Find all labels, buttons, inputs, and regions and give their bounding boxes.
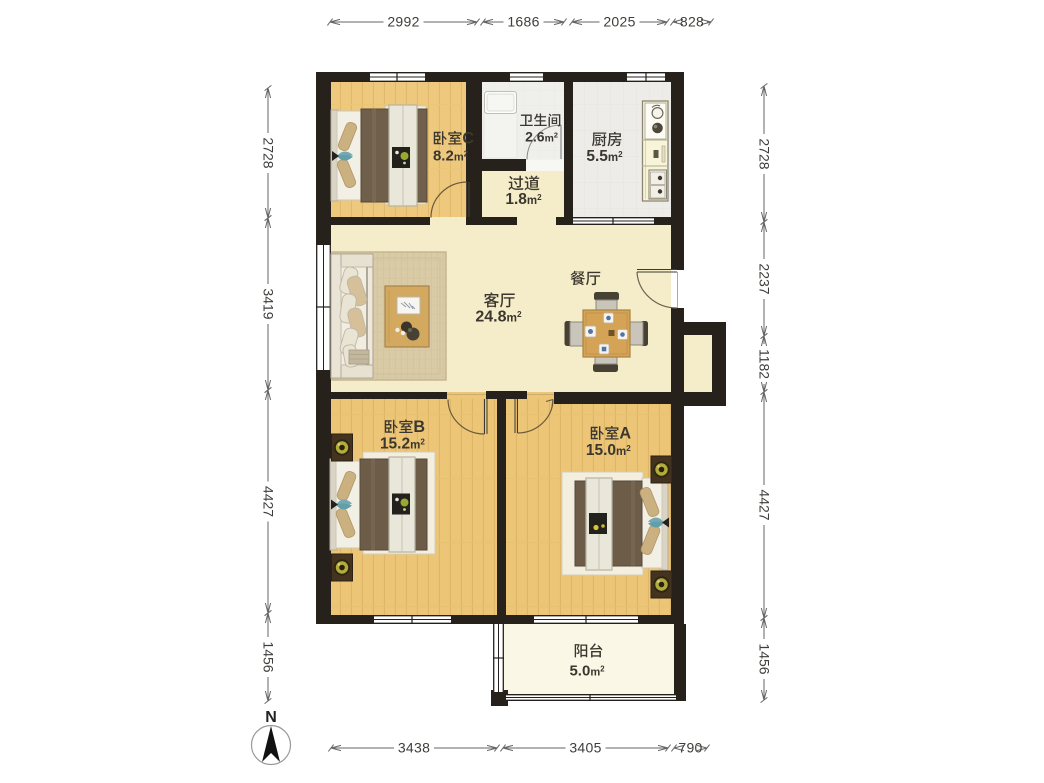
svg-text:1456: 1456 [757,643,773,674]
svg-text:4427: 4427 [261,486,277,517]
svg-text:C: C [462,130,474,148]
svg-text:5.0m2: 5.0m2 [569,663,605,680]
svg-text:B: B [413,418,425,436]
svg-text:2728: 2728 [757,138,773,169]
svg-text:2.6m2: 2.6m2 [525,129,558,145]
svg-text:4427: 4427 [757,489,773,520]
svg-text:828: 828 [680,14,704,30]
svg-text:3438: 3438 [398,740,430,756]
svg-text:1456: 1456 [261,641,277,672]
svg-text:N: N [265,709,277,726]
svg-text:2992: 2992 [387,14,419,30]
svg-text:1686: 1686 [507,14,539,30]
svg-text:3405: 3405 [569,740,601,756]
svg-text:2728: 2728 [261,137,277,168]
svg-text:790: 790 [678,740,702,756]
svg-text:24.8m2: 24.8m2 [475,309,522,326]
svg-text:2025: 2025 [603,14,635,30]
svg-text:1.8m2: 1.8m2 [505,191,542,208]
svg-text:1182: 1182 [757,349,773,379]
svg-text:3419: 3419 [261,288,277,319]
svg-text:2237: 2237 [757,263,773,294]
svg-text:A: A [619,425,631,443]
svg-text:8.2m2: 8.2m2 [433,148,469,165]
svg-text:5.5m2: 5.5m2 [586,148,623,165]
